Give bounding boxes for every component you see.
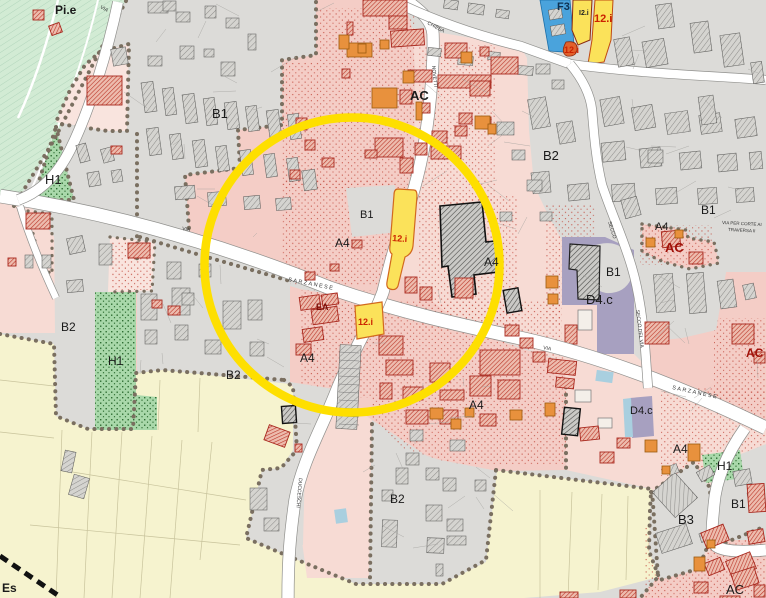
svg-text:AC: AC <box>410 88 429 103</box>
svg-text:B1: B1 <box>731 497 746 511</box>
svg-text:D4.c: D4.c <box>586 292 613 307</box>
svg-text:B1: B1 <box>212 106 228 121</box>
svg-text:AC: AC <box>746 346 764 360</box>
svg-text:B2: B2 <box>226 368 241 382</box>
svg-text:12.i: 12.i <box>358 317 373 327</box>
svg-text:A4: A4 <box>484 255 499 269</box>
svg-text:AC: AC <box>726 582 744 597</box>
svg-text:A4: A4 <box>335 236 350 250</box>
svg-text:12.i: 12.i <box>594 13 612 25</box>
svg-text:F3: F3 <box>557 1 570 13</box>
svg-text:Pi.e: Pi.e <box>55 3 77 17</box>
svg-text:I2.i: I2.i <box>579 10 589 17</box>
svg-text:H1: H1 <box>45 172 62 187</box>
svg-text:B1: B1 <box>360 209 373 221</box>
svg-text:A4: A4 <box>469 398 484 412</box>
svg-text:B2: B2 <box>390 492 405 506</box>
svg-text:12.i: 12.i <box>392 233 408 244</box>
svg-text:12.i: 12.i <box>564 45 579 55</box>
svg-text:B1: B1 <box>701 203 716 217</box>
svg-text:B2: B2 <box>61 320 76 334</box>
svg-text:A4: A4 <box>655 221 668 233</box>
svg-text:H1: H1 <box>717 459 733 473</box>
svg-text:A4: A4 <box>300 351 315 365</box>
svg-text:D4.c: D4.c <box>630 405 653 417</box>
svg-text:EA: EA <box>316 302 329 312</box>
svg-text:H1: H1 <box>108 354 124 368</box>
svg-text:Es: Es <box>2 581 17 595</box>
svg-text:AC: AC <box>665 240 684 255</box>
svg-text:B1: B1 <box>606 265 621 279</box>
svg-text:B3: B3 <box>678 512 694 527</box>
svg-text:B2: B2 <box>543 148 559 163</box>
svg-text:A4: A4 <box>673 442 688 456</box>
